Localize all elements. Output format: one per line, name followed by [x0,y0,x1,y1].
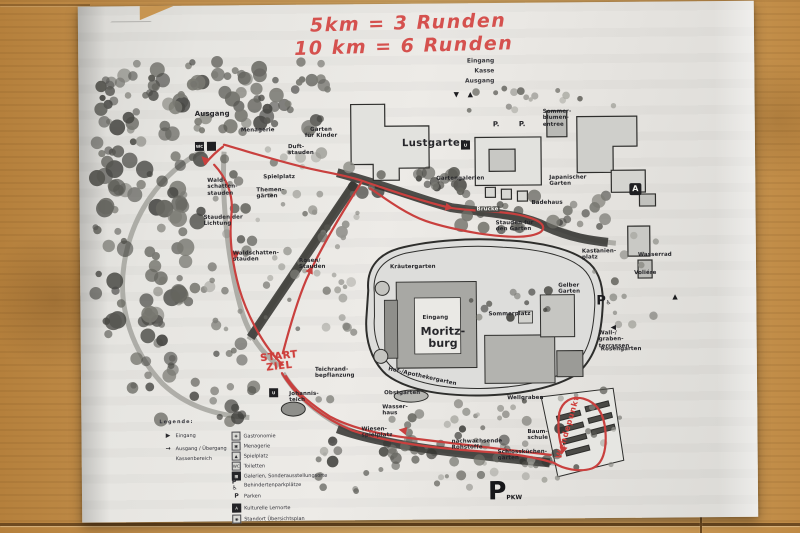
info-icon [207,142,216,151]
map-label-wasserhaus: Wasser- haus [382,404,408,417]
map-label-lustgarten: Lustgarten [402,138,468,150]
legend-label: Kassenbereich [176,456,212,462]
map-label-wasserrad: Wasserrad [638,252,672,259]
map-label-eingang-schloss: Eingang [422,315,448,322]
accessible-parking-p: P [596,293,606,308]
legend-label: Parken [244,493,261,499]
map-label-spielplatz: Spielplatz [263,174,295,181]
map-label-wiesenspielplatz: Wiesen- spielplatz [361,426,392,439]
legend-label: Standort Übersichtsplan [244,515,305,522]
map-label-wellgraben: Wellgraben [507,395,543,402]
accessible-parking-legend-icon: P♿ [232,482,241,489]
map-label-kastanienplatz: Kastanien- platz [582,248,616,261]
wc-icon: WC [195,142,204,151]
legend-label: Eingang [175,432,195,438]
car-parking-icon: PPKW [488,478,522,503]
map-label-rosengarten: Rosengarten [601,346,642,353]
legend-label: Gastronomie [243,433,275,439]
triangle-up-icon: ▲ [672,294,677,301]
you-are-here-icon: ◉ [232,515,241,524]
legend-label: Galerien, Sonderausstellungsorte [244,472,328,479]
wheelchair-icon: ♿ [606,299,611,306]
map-label-stauden-fuer-den-garten: Stauden für den Garten [496,220,534,233]
gastronomy-icon: ✚ [231,432,240,441]
photo-of-park-map-on-wood-table: 5km = 3 Runden 10 km = 6 Runden START ZI… [0,0,800,533]
map-content-layer: 5km = 3 Runden 10 km = 6 Runden START ZI… [0,0,800,533]
legend-label: Toiletten [244,463,265,469]
legend-title: Legende: [159,418,349,426]
legend-label: Menagerie [244,443,270,449]
culture-legend-icon: A [232,504,241,513]
map-label-badehaus: Badehaus [531,200,562,207]
map-label-parking-dot2: P. [519,120,526,128]
map-label-bruecke: Brücke [476,206,500,213]
map-label-menagerie: Menagerie [241,127,275,134]
map-label-gartengalerien: Gartengalerien [436,175,484,182]
parking-p: P [488,476,507,505]
parking-legend-icon: P [232,493,241,500]
legend-label: Ausgang / Übergang [176,445,227,451]
toilet-icon: U [269,388,278,397]
map-label-kraeutergarten: Kräutergarten [390,264,436,271]
toilets-icon: WC [232,462,241,471]
map-label-ausgang: Ausgang [195,110,230,119]
toilet-icon: U [461,141,470,150]
map-label-duftstauden: Duft- stauden [288,144,314,157]
legend-label: Behindertenparkplätze [244,482,301,488]
map-label-baumschule: Baum- schule [527,429,548,442]
playground-icon: ▲ [232,452,241,461]
entrance-cashier-exit-label: Eingang Kasse Ausgang [436,56,494,86]
map-label-nachwachsende-rohstoffe: nachwachsende Rohstoffe [452,438,503,451]
map-label-garten-fuer-kinder: Garten für Kinder [305,127,338,140]
map-label-waldschattenstauden: Waldschatten- stauden [233,250,279,263]
accessible-parking-icon: P♿ [596,294,611,307]
triangle-down-icon: ▼ [454,92,459,99]
start-finish-marker: START ZIEL [260,350,298,374]
legend-label: Spielplatz [244,453,268,459]
map-label-themengaerten: Themen- gärten [256,187,284,200]
menagerie-icon: ▣ [232,442,241,451]
parking-pkw-label: PKW [506,494,522,501]
map-label-teichrandbepflanzung: Teichrand- bepflanzung [315,367,355,380]
map-label-johannisteich: Johannis- teich [289,391,319,404]
map-label-schlosskuechengarten: Schlossküchen- garten [498,449,548,462]
map-label-stauden-der-lichtung: Stauden der Lichtung [204,215,243,228]
map-label-voliere: Voliére [634,270,656,277]
map-label-sommerplatz: Sommerplatz [488,311,530,318]
map-label-sommerblumenentree: Sommer- blumen- entree [543,109,572,129]
exit-arrow-icon: → [164,445,173,452]
culture-a-icon: A [629,183,641,195]
map-label-waldschattenstauden-west: Wald- schatten- stauden [207,178,237,198]
map-label-parking-dot1: P. [493,120,500,128]
entrance-arrow-icon: ▶ [163,432,172,439]
triangle-up-icon: ▲ [468,92,473,99]
map-legend: Legende: ▶Eingang →Ausgang / Übergang Ka… [159,418,349,430]
map-label-moritzburg: Moritz- burg [421,326,466,349]
map-label-obstgarten: Obstgarten [384,390,420,397]
map-label-gelber-garten: Gelber Garten [558,283,580,296]
map-label-rosen-stauden: Rosen/ Stauden [299,258,326,271]
legend-label: Kulturelle Lernorte [244,505,290,511]
map-label-japanischer-garten: Japanischer Garten [549,175,586,188]
